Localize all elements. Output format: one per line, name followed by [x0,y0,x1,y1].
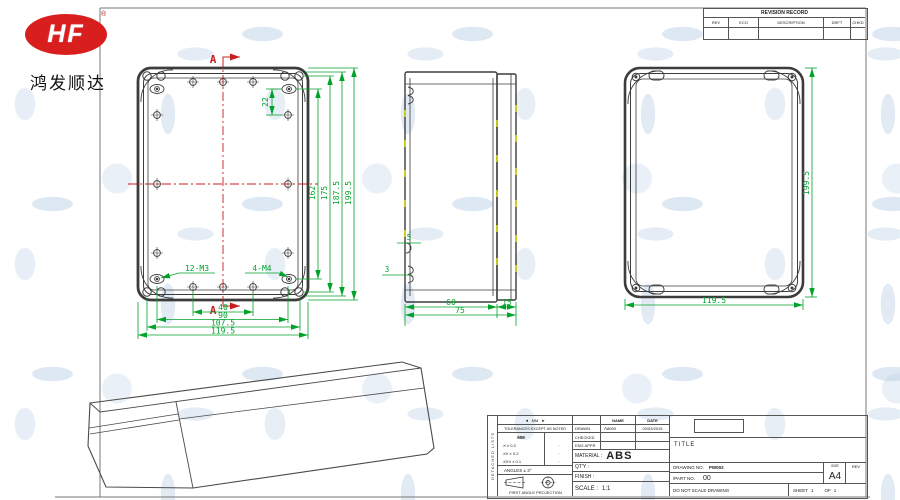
dim-label: 22 [261,97,270,107]
section-label-a-top: A [210,53,217,66]
checked-label: CHECKED [573,433,601,442]
arrow-right-icon: ► [541,418,545,423]
title-label: TITLE [674,440,734,450]
dim-label: 199.5 [344,181,353,205]
dim-label: 15 [502,298,512,307]
revision-col-rev: REV [704,18,729,28]
projection-note: FIRST ANGLE PROJECTION [498,489,573,496]
tolerance-table: MM .X ± 0.3 .XX ± 0.2 .XXX ± 0.1 · · · [498,433,573,466]
bottom-row: DO NOT SCALE DRAWING SHEET 1 OF 1 [670,484,866,496]
dim-label: 162 [308,186,317,201]
tolerance-dot: · [545,457,573,465]
name-header: NAME [601,416,636,425]
material-row: MATERIAL : ABS [573,450,670,463]
do-not-scale-note: DO NOT SCALE DRAWING [670,484,789,496]
hole-label-m4: 4-M4 [252,264,271,273]
dim-label: 3 [385,265,390,274]
m3-holes [151,76,294,293]
tolerance-header: MM [498,433,544,441]
part-no-label: /PART NO. [673,476,695,481]
of-number: 1 [834,488,837,493]
front-view: A A [128,53,358,339]
units-note-row: ◄ MM ► [498,416,573,425]
eng-appr-date [636,442,670,450]
title-block: DETACHED LISTS ◄ MM ► TOLERANCES EXCEPT … [487,415,868,499]
material-value: ABS [606,450,632,462]
checked-date [636,433,670,442]
drawing-no-label: DRAWING NO. [673,465,704,470]
sheet-label: SHEET [793,488,808,493]
title-row: TITLE [670,438,866,463]
eng-appr-name [601,442,636,450]
revision-record-table: REVISION RECORD REV ECO DESCRIPTION DRFT… [703,8,868,40]
checked-name [601,433,636,442]
revision-col-eco: ECO [729,18,759,28]
title-block-side-strip: DETACHED LISTS [488,416,498,496]
of-label: OF [825,488,831,493]
qty-row: QT'Y : [573,463,670,472]
logo-oval: HF [25,14,107,55]
date-header: DATE [636,416,670,425]
back-view: 199.5 119.5 [625,68,817,310]
registered-trademark-icon: ® [101,11,106,18]
scale-label: SCALE : [575,486,598,492]
drawing-no-area: DRAWING NO. PW002 /PART NO. 00 SIZE A4 R… [670,463,866,484]
sheet-cell: SHEET 1 OF 1 [789,484,866,496]
revision-empty-cell [729,28,759,39]
hatch-ticks [405,105,516,272]
dim-label: 75 [455,306,465,315]
drawing-no-value: PW002 [709,465,724,470]
drawn-date: 02/03/2015 [636,425,670,433]
tolerance-row: .XX ± 0.2 [502,449,544,457]
scale-row: SCALE : 1:1 [573,482,670,496]
revision-col-drft: DRFT [824,18,851,28]
revision-empty-cell [704,28,729,39]
dim-label: 199.5 [802,171,811,195]
hole-label-m3: 12-M3 [185,264,209,273]
tolerance-row: .X ± 0.3 [502,441,544,449]
drawing-sheet: A A [0,0,900,500]
tolerance-row: .XXX ± 0.1 [502,457,544,465]
side-view: 5 3 60 15 75 [382,72,516,326]
revision-empty-cell [824,28,851,39]
angles-note: ANGLES ± 3° [498,466,573,475]
sheet-number: 1 [811,488,814,493]
side-dimensions [382,243,516,326]
drawn-name: Aaron [601,425,636,433]
revision-col-chkd: CHKD [851,18,865,28]
dim-label: 5 [407,233,412,242]
tolerance-note: TOLERANCES EXCEPT AS NOTED [498,425,573,433]
name-date-corner [573,416,601,425]
revision-empty-cell [759,28,824,39]
rev-label: REV [846,463,866,469]
centerlines [128,57,318,308]
drawn-label: DRAWN [573,425,601,433]
back-dimensions [625,68,817,310]
logo-box-row [670,416,866,438]
size-value: A4 [824,469,846,483]
part-no-value: 00 [703,475,711,482]
dim-label: 187.5 [332,181,341,205]
back-corner-holes [632,71,796,294]
units-note: MM [532,418,539,423]
dim-label: 119.5 [211,327,235,336]
revision-table-title: REVISION RECORD [704,9,865,18]
revision-col-description: DESCRIPTION [759,18,824,28]
arrow-left-icon: ◄ [525,418,529,423]
isometric-view [88,362,434,488]
material-label: MATERIAL : [575,453,602,459]
eng-appr-label: ENG APPR [573,442,601,450]
logo-text: HF [47,20,84,49]
scale-value: 1:1 [602,486,610,492]
side-strip-note: DETACHED LISTS [490,432,495,480]
projection-cell: FIRST ANGLE PROJECTION [498,475,573,496]
logo-placeholder-box [694,419,744,433]
dim-label: 119.5 [702,296,726,305]
logo-subtitle: 鸿发顺达 [18,69,118,94]
section-label-a-bottom: A [210,304,217,317]
dim-label: 175 [320,186,329,201]
tolerance-dot: · [545,441,573,449]
finish-row: FINISH : [573,472,670,482]
first-angle-projection-icon [504,476,566,489]
tolerance-dot: · [545,449,573,457]
